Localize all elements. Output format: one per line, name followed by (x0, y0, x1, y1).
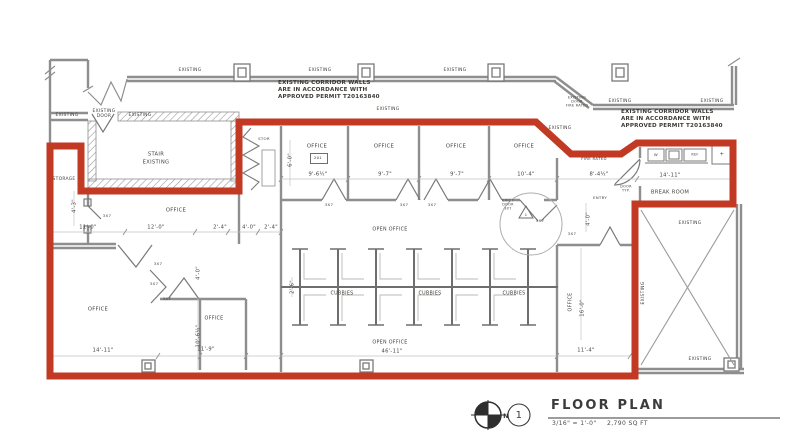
corridor-note-left-line1: EXISTING CORRIDOR WALLS (278, 81, 371, 87)
door-tag: 3X7 (400, 203, 409, 207)
label-existing: EXISTING (377, 108, 400, 112)
label-existing: EXISTING (179, 69, 202, 73)
dim: 11'-9" (197, 347, 214, 352)
label-existing: EXISTING (444, 69, 467, 73)
dim: 12'-0" (147, 225, 164, 230)
dim: 8'-4½" (589, 172, 608, 177)
dim: 14'-11" (93, 348, 114, 353)
label-existing: EXISTING (549, 127, 572, 131)
note-exist-fire: FIRE RATED (566, 104, 589, 107)
dim: 2'-4" (264, 225, 278, 230)
dim: 14'-11" (660, 173, 681, 178)
label-office-3: OFFICE (446, 144, 466, 149)
label-office-small: OFFICE (205, 318, 224, 323)
counter-w: W (654, 153, 658, 157)
floor-plan-canvas: EXISTING CORRIDOR WALLS ARE IN ACCORDANC… (0, 0, 786, 439)
label-storage: STORAGE (53, 178, 76, 182)
room-tag: 201 (314, 156, 322, 160)
label-office-southwest: OFFICE (88, 307, 108, 312)
dim-open-office: 46'-11" (382, 349, 403, 354)
north-arrow-icon (471, 400, 505, 430)
label-open-office-bottom: OPEN OFFICE (372, 342, 407, 347)
corridor-note-right-line2: ARE IN ACCORDANCE WITH (621, 117, 710, 123)
dim: 4'-0" (196, 266, 201, 280)
drawing-area: 2,790 SQ FT (607, 421, 648, 427)
label-office-west: OFFICE (166, 208, 186, 213)
plan-linework (0, 0, 786, 439)
label-stair-existing: EXISTING (143, 160, 170, 165)
corridor-note-left-line2: ARE IN ACCORDANCE WITH (278, 88, 367, 94)
dim: 9'-7" (450, 172, 464, 177)
label-cubbies-2: CUBBIES (418, 293, 441, 298)
shelf (262, 150, 275, 186)
door-tag: 3X7 (154, 262, 163, 266)
note-door-typ: TYP. (622, 189, 630, 192)
label-cubbies-1: CUBBIES (330, 293, 353, 298)
label-existing: EXISTING (642, 282, 646, 305)
label-existing: EXISTING (701, 100, 724, 104)
dim: 2'-4" (213, 225, 227, 230)
label-open-office-top: OPEN OFFICE (372, 229, 407, 234)
dim: 4'-0" (242, 225, 256, 230)
door-tag: 3X7 (568, 232, 577, 236)
lockers (243, 128, 259, 190)
label-office-east: OFFICE (570, 293, 575, 312)
door-tag: 3X7 (163, 297, 172, 301)
corridor-note-right-line1: EXISTING CORRIDOR WALLS (621, 110, 714, 116)
label-existing-door: DOOR (97, 115, 112, 119)
door-tag: 3X7 (150, 282, 159, 286)
detail-number: 1 (516, 411, 523, 421)
label-existing: EXISTING (56, 114, 79, 118)
note-exist-door: 3X7 (504, 207, 512, 210)
label-stor: STOR (258, 137, 270, 141)
door-tag: 3X7 (536, 219, 545, 223)
dim: 16'-0" (580, 299, 585, 316)
x-room-cross (641, 210, 734, 365)
label-office-2: OFFICE (374, 144, 394, 149)
door-tag: 3X7 (103, 214, 112, 218)
note-entry: ENTRY (593, 196, 607, 200)
dim: 4'-0" (586, 212, 591, 226)
label-stair: STAIR (148, 152, 164, 157)
dim: 11'-4" (577, 348, 594, 353)
cubicles (281, 249, 558, 325)
dim: 4'-3" (72, 199, 77, 213)
label-existing: EXISTING (129, 114, 152, 118)
door-tag: 3X7 (325, 203, 334, 207)
door-tag: 3X7 (428, 203, 437, 207)
dim: 9'-6½" (308, 172, 327, 177)
counter-ref: REF (691, 153, 698, 156)
label-office-4: OFFICE (514, 144, 534, 149)
corridor-note-right-line3: APPROVED PERMIT T20163840 (621, 124, 723, 130)
dim: 6'-0" (288, 153, 293, 167)
label-existing: EXISTING (309, 69, 332, 73)
revision-number: 1 (525, 213, 528, 217)
dim: 10'-4" (517, 172, 534, 177)
dim: 2'-6" (290, 280, 295, 294)
label-break-room: BREAK ROOM (651, 190, 689, 195)
label-office-1: OFFICE (307, 144, 327, 149)
dim: 9'-7" (378, 172, 392, 177)
corridor-note-left-line3: APPROVED PERMIT T20163840 (278, 95, 380, 101)
label-existing: EXISTING (689, 358, 712, 362)
counter-plus: + (720, 152, 725, 157)
dim: 10'-6½" (196, 325, 201, 348)
hatched-walls (88, 112, 239, 188)
north-label: N (503, 413, 509, 420)
label-cubbies-3: CUBBIES (502, 293, 525, 298)
drawing-title: FLOOR PLAN (551, 399, 665, 412)
dim: 11'-0" (79, 225, 96, 230)
drawing-scale: 3/16" = 1'-0" (552, 421, 596, 427)
label-existing: EXISTING (679, 222, 702, 226)
note-fire-rated: FIRE RATED (581, 157, 607, 161)
label-existing: EXISTING (609, 100, 632, 104)
